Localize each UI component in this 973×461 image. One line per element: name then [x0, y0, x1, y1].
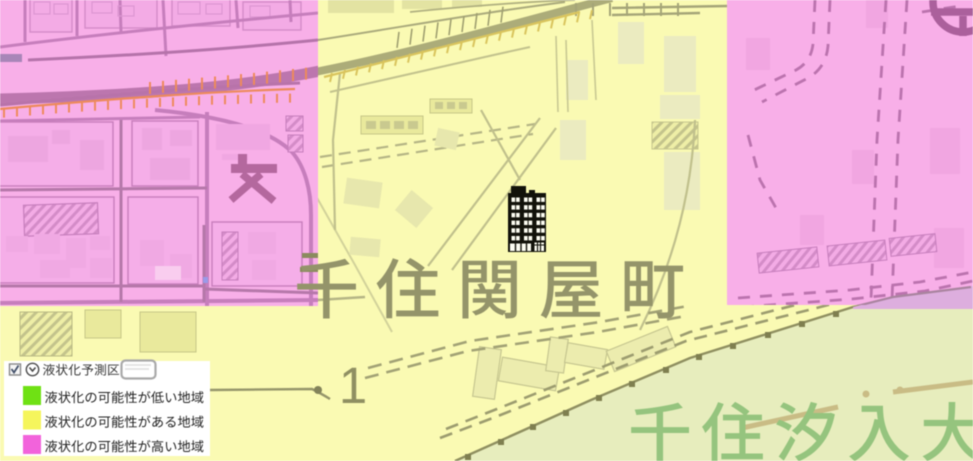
svg-text:1: 1	[339, 357, 367, 414]
